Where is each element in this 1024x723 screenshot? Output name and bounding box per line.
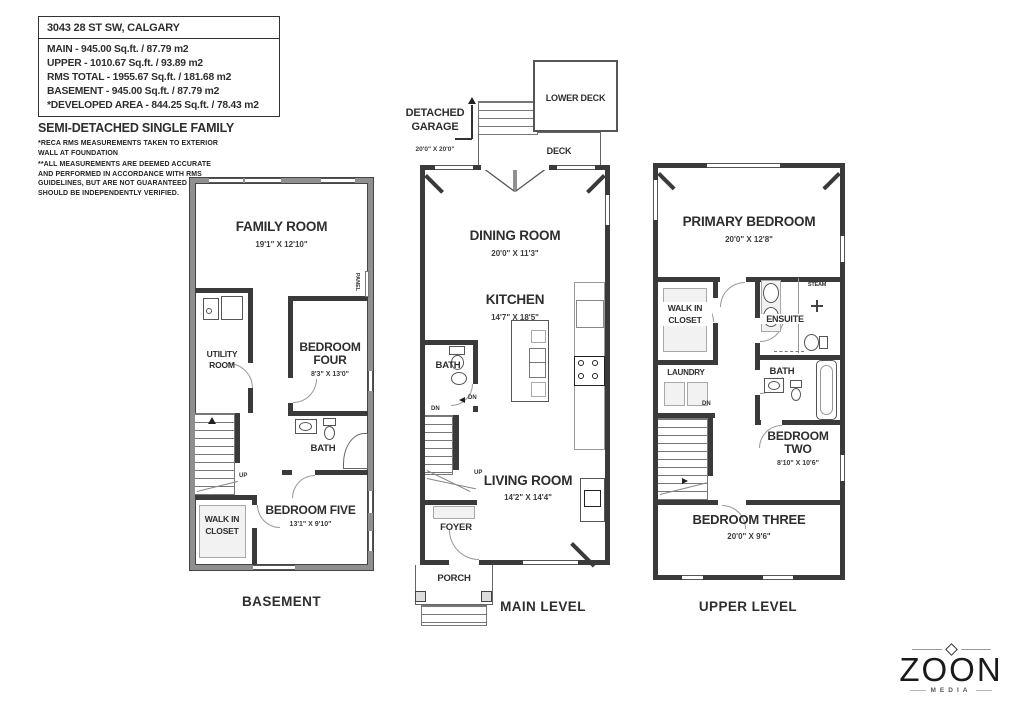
main-level-caption: MAIN LEVEL	[478, 599, 608, 614]
kitchen-dims: 14'7" X 18'5"	[425, 313, 605, 322]
bedroom-two-label: BEDROOM TWO	[758, 430, 838, 456]
foyer-label: FOYER	[425, 522, 487, 533]
corner-shower	[343, 433, 368, 469]
property-address: 3043 28 ST SW, CALGARY	[39, 17, 279, 39]
porch-label: PORCH	[415, 573, 493, 584]
detached-garage-label: DETACHED GARAGE	[403, 106, 467, 134]
wall	[782, 420, 840, 425]
upper-floor-plan: WALK IN CLOSET STEAM ENSUITE LAUNDRY BAT…	[653, 163, 845, 580]
bedroom-five-dims: 13'1" X 9'10"	[253, 521, 368, 528]
area-info-box: 3043 28 ST SW, CALGARY MAIN - 945.00 Sq.…	[38, 16, 280, 117]
garage-arrow-icon	[468, 97, 476, 104]
wall	[755, 277, 760, 318]
wall	[315, 470, 368, 475]
door-arc	[449, 530, 479, 560]
garage-leader-line	[455, 138, 472, 140]
wall	[755, 420, 761, 425]
primary-bedroom-dims: 20'0" X 12'8"	[658, 235, 840, 244]
wall	[288, 411, 368, 416]
dn-label: DN	[468, 395, 477, 401]
family-room-dims: 19'1" X 12'10"	[195, 240, 368, 249]
primary-bedroom-label: PRIMARY BEDROOM	[658, 214, 840, 229]
stair-direction-arrow	[208, 417, 216, 424]
lower-deck: LOWER DECK	[533, 60, 618, 132]
basement-wic-label: WALK IN CLOSET	[197, 513, 247, 537]
fixture-dial	[206, 308, 212, 314]
upper-bath-label: BATH	[760, 366, 804, 377]
upper-level-caption: UPPER LEVEL	[678, 599, 818, 614]
family-room-label: FAMILY ROOM	[195, 219, 368, 234]
logo-line	[910, 690, 926, 691]
wall	[713, 277, 718, 298]
property-type-label: SEMI-DETACHED SINGLE FAMILY	[38, 121, 234, 135]
water-heater	[221, 296, 243, 320]
steam-plus-icon	[816, 300, 818, 312]
corner-brace	[657, 172, 675, 190]
dining-room-dims: 20'0" X 11'3"	[425, 249, 605, 258]
kitchen-label: KITCHEN	[425, 292, 605, 307]
stove-burner	[592, 360, 598, 366]
ensuite-label: ENSUITE	[761, 314, 809, 324]
patio-door-opening	[481, 165, 549, 170]
zoon-media-logo: ZOON MEDIA	[886, 645, 1016, 694]
logo-subtitle-row: MEDIA	[886, 687, 1016, 694]
dn-label: DN	[702, 401, 711, 407]
toilet-tank	[790, 380, 802, 388]
stair-direction-arrow	[682, 478, 688, 484]
door-arc	[720, 282, 745, 307]
utility-room-label: UTILITY ROOM	[197, 349, 247, 371]
bedroom-three-dims: 20'0" X 9'6"	[658, 532, 840, 541]
corner-brace	[586, 174, 606, 194]
bedroom-two-dims: 8'10" X 10'6"	[758, 460, 838, 467]
wall	[248, 288, 253, 363]
living-room-label: LIVING ROOM	[458, 473, 598, 488]
window	[368, 491, 373, 513]
basement-floor-plan: UP PANEL FAMILY ROOM 19'1" X 12'10" UTIL…	[190, 178, 373, 570]
laundry-label: LAUNDRY	[658, 368, 714, 377]
porch-post	[415, 591, 426, 602]
foyer-closet	[433, 506, 475, 519]
basement-caption: BASEMENT	[190, 594, 373, 609]
living-room-dims: 14'2" X 14'4"	[458, 493, 598, 502]
window	[209, 178, 243, 183]
wall	[658, 500, 718, 505]
island-sink-divider	[529, 362, 546, 363]
entry-door-opening	[449, 560, 479, 565]
logo-brand: ZOON	[886, 654, 1016, 686]
window	[707, 163, 780, 168]
dn-label: DN	[431, 406, 440, 412]
toilet-bowl	[791, 388, 801, 401]
stove-burner	[592, 373, 598, 379]
logo-line	[912, 649, 942, 650]
island-sink	[529, 348, 546, 378]
window	[557, 165, 595, 170]
window	[435, 165, 473, 170]
dn-arrow-icon	[459, 397, 465, 403]
wall	[252, 528, 257, 565]
panel-label: PANEL	[354, 273, 360, 291]
floor-plan-page: 3043 28 ST SW, CALGARY MAIN - 945.00 Sq.…	[0, 0, 1024, 723]
wall	[746, 500, 840, 505]
wall	[248, 388, 253, 413]
window	[763, 575, 793, 580]
sink	[763, 283, 779, 303]
wall	[195, 288, 253, 293]
window	[253, 565, 295, 570]
shower-door-dashed	[774, 351, 804, 352]
window	[605, 195, 610, 225]
basement-bath-label: BATH	[300, 443, 346, 454]
bedroom-three-label: BEDROOM THREE	[658, 512, 840, 527]
up-label: UP	[239, 473, 247, 479]
bedroom-four-label: BEDROOM FOUR	[292, 341, 368, 367]
wall	[195, 495, 257, 500]
area-line-main: MAIN - 945.00 Sq.ft. / 87.79 m2	[39, 42, 279, 56]
main-bath-label: BATH	[425, 360, 471, 371]
window	[368, 371, 373, 391]
window	[653, 180, 658, 220]
wall	[473, 406, 478, 412]
dining-room-label: DINING ROOM	[425, 228, 605, 243]
main-stairs	[425, 415, 453, 475]
door-arc	[292, 475, 315, 498]
sink	[451, 372, 467, 385]
wall	[658, 360, 715, 365]
deck-label: DECK	[534, 146, 584, 156]
steam-label: STEAM	[796, 282, 838, 288]
logo-line	[976, 690, 992, 691]
area-line-rms-total: RMS TOTAL - 1955.67 Sq.ft. / 181.68 m2	[39, 70, 279, 84]
logo-line	[961, 649, 991, 650]
main-floor-plan: BATH DN DN UP DINING ROOM 20'0" X 11'3" …	[420, 165, 610, 565]
window	[321, 178, 355, 183]
bedroom-five-label: BEDROOM FIVE	[253, 503, 368, 517]
wall	[708, 418, 713, 476]
area-line-developed: *DEVELOPED AREA - 844.25 Sq.ft. / 78.43 …	[39, 98, 279, 112]
washer	[664, 382, 685, 406]
wall	[282, 470, 292, 475]
stove-burner	[578, 373, 584, 379]
wall	[713, 323, 718, 365]
detached-garage-dims: 20'0" X 20'0"	[403, 146, 467, 153]
sink-basin	[768, 381, 780, 390]
bathtub-inner	[820, 365, 833, 415]
area-line-upper: UPPER - 1010.67 Sq.ft. / 93.89 m2	[39, 56, 279, 70]
wall	[473, 340, 478, 384]
toilet-bowl	[324, 426, 335, 440]
island-seat	[531, 330, 546, 343]
wall	[235, 413, 240, 463]
toilet-tank	[323, 418, 336, 426]
wall	[425, 340, 478, 345]
porch: PORCH	[415, 565, 493, 627]
window	[245, 178, 281, 183]
toilet-bowl	[804, 334, 819, 351]
sink-basin	[299, 422, 312, 431]
french-doors-icon	[481, 167, 549, 193]
window	[523, 560, 578, 565]
corner-brace	[424, 174, 444, 194]
window	[682, 575, 703, 580]
window	[840, 236, 845, 262]
logo-subtitle: MEDIA	[931, 687, 972, 694]
window	[840, 455, 845, 481]
stair-divider-wall	[453, 415, 459, 470]
deck-stairs	[478, 101, 538, 135]
toilet-tank	[449, 346, 465, 355]
corner-brace	[822, 172, 840, 190]
disclaimer-reca: *RECA RMS MEASUREMENTS TAKEN TO EXTERIOR…	[38, 139, 220, 158]
wall	[288, 296, 368, 301]
island-seat	[531, 382, 546, 397]
area-line-basement: BASEMENT - 945.00 Sq.ft. / 87.79 m2	[39, 84, 279, 98]
toilet-tank	[819, 336, 828, 349]
wall	[658, 277, 720, 282]
stove-burner	[578, 360, 584, 366]
garage-leader-line	[471, 105, 473, 139]
lower-deck-label: LOWER DECK	[535, 93, 616, 103]
door-arc	[293, 379, 317, 403]
electrical-panel	[365, 271, 369, 297]
window	[368, 531, 373, 551]
upper-wic-label: WALK IN CLOSET	[658, 302, 712, 326]
bedroom-four-dims: 8'3" X 13'0"	[292, 371, 368, 378]
